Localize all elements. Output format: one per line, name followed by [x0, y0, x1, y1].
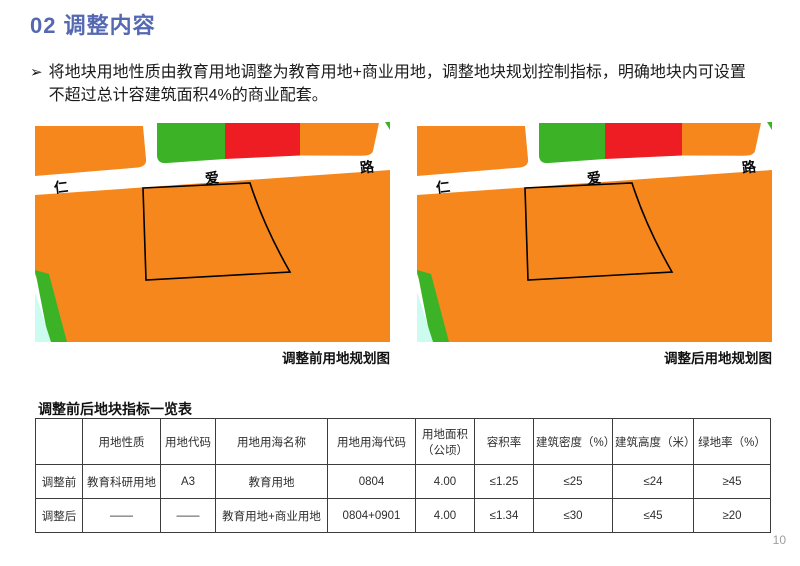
table-header-cell: 容积率: [475, 419, 534, 465]
table-cell: A3: [161, 465, 216, 499]
table-header-cell: 建筑密度（%）: [534, 419, 613, 465]
table-cell: ——: [161, 499, 216, 533]
map-caption-after: 调整后用地规划图: [417, 347, 772, 367]
table-header-cell: 用地代码: [161, 419, 216, 465]
table-cell: 教育科研用地: [83, 465, 161, 499]
page-title: 02 调整内容: [30, 8, 156, 40]
land-use-map-after-svg: 仁 爱 路: [417, 122, 772, 342]
land-block-red: [225, 123, 300, 159]
land-block-topright-orange: [682, 123, 761, 156]
map-caption-before: 调整前用地规划图: [35, 347, 390, 367]
table-cell: ≤30: [534, 499, 613, 533]
slide: 02 调整内容 ➢ 将地块用地性质由教育用地调整为教育用地+商业用地，调整地块规…: [0, 0, 800, 566]
table-cell: ≤45: [613, 499, 694, 533]
bullet-text: 将地块用地性质由教育用地调整为教育用地+商业用地，调整地块规划控制指标，明确地块…: [49, 62, 760, 107]
table-header-cell: 建筑高度（米）: [613, 419, 694, 465]
table-header-row: 用地性质 用地代码 用地用海名称 用地用海代码 用地面积（公顷） 容积率 建筑密…: [36, 419, 771, 465]
bullet-item: ➢ 将地块用地性质由教育用地调整为教育用地+商业用地，调整地块规划控制指标，明确…: [30, 62, 760, 107]
table-header-cell: [36, 419, 83, 465]
table-row-after: 调整后 —— —— 教育用地+商业用地 0804+0901 4.00 ≤1.34…: [36, 499, 771, 533]
table-header-cell: 绿地率（%）: [694, 419, 771, 465]
table-cell: ≥45: [694, 465, 771, 499]
table-header-cell: 用地性质: [83, 419, 161, 465]
land-use-map-before-svg: 仁 爱 路: [35, 122, 390, 342]
land-block-main-orange: [417, 168, 772, 342]
table-row-before: 调整前 教育科研用地 A3 教育用地 0804 4.00 ≤1.25 ≤25 ≤…: [36, 465, 771, 499]
land-block-green: [539, 123, 605, 163]
row-label: 调整前: [36, 465, 83, 499]
table-cell: 教育用地: [216, 465, 328, 499]
land-use-map-after: 仁 爱 路: [417, 122, 772, 342]
table-cell: ≤1.25: [475, 465, 534, 499]
table-header-cell: 用地用海名称: [216, 419, 328, 465]
table-cell: 教育用地+商业用地: [216, 499, 328, 533]
table-cell: ——: [83, 499, 161, 533]
table-cell: ≤24: [613, 465, 694, 499]
table-cell: ≤1.34: [475, 499, 534, 533]
table-header-cell: 用地用海代码: [328, 419, 416, 465]
table-cell: ≥20: [694, 499, 771, 533]
land-block-topright-orange: [300, 123, 379, 156]
land-block-green: [157, 123, 225, 163]
indicator-table: 用地性质 用地代码 用地用海名称 用地用海代码 用地面积（公顷） 容积率 建筑密…: [35, 418, 771, 533]
table-cell: 4.00: [416, 465, 475, 499]
road-label-ren: 仁: [53, 178, 69, 196]
table-cell: ≤25: [534, 465, 613, 499]
bullet-arrow-icon: ➢: [30, 62, 43, 85]
row-label: 调整后: [36, 499, 83, 533]
page-number: 10: [773, 533, 786, 547]
land-block-red: [605, 123, 682, 159]
table-title: 调整前后地块指标一览表: [38, 399, 192, 419]
land-block-main-orange: [35, 168, 390, 342]
land-use-map-before: 仁 爱 路: [35, 122, 390, 342]
table-cell: 0804: [328, 465, 416, 499]
table-cell: 0804+0901: [328, 499, 416, 533]
table-cell: 4.00: [416, 499, 475, 533]
road-label-ren: 仁: [435, 178, 451, 196]
table-header-cell: 用地面积（公顷）: [416, 419, 475, 465]
